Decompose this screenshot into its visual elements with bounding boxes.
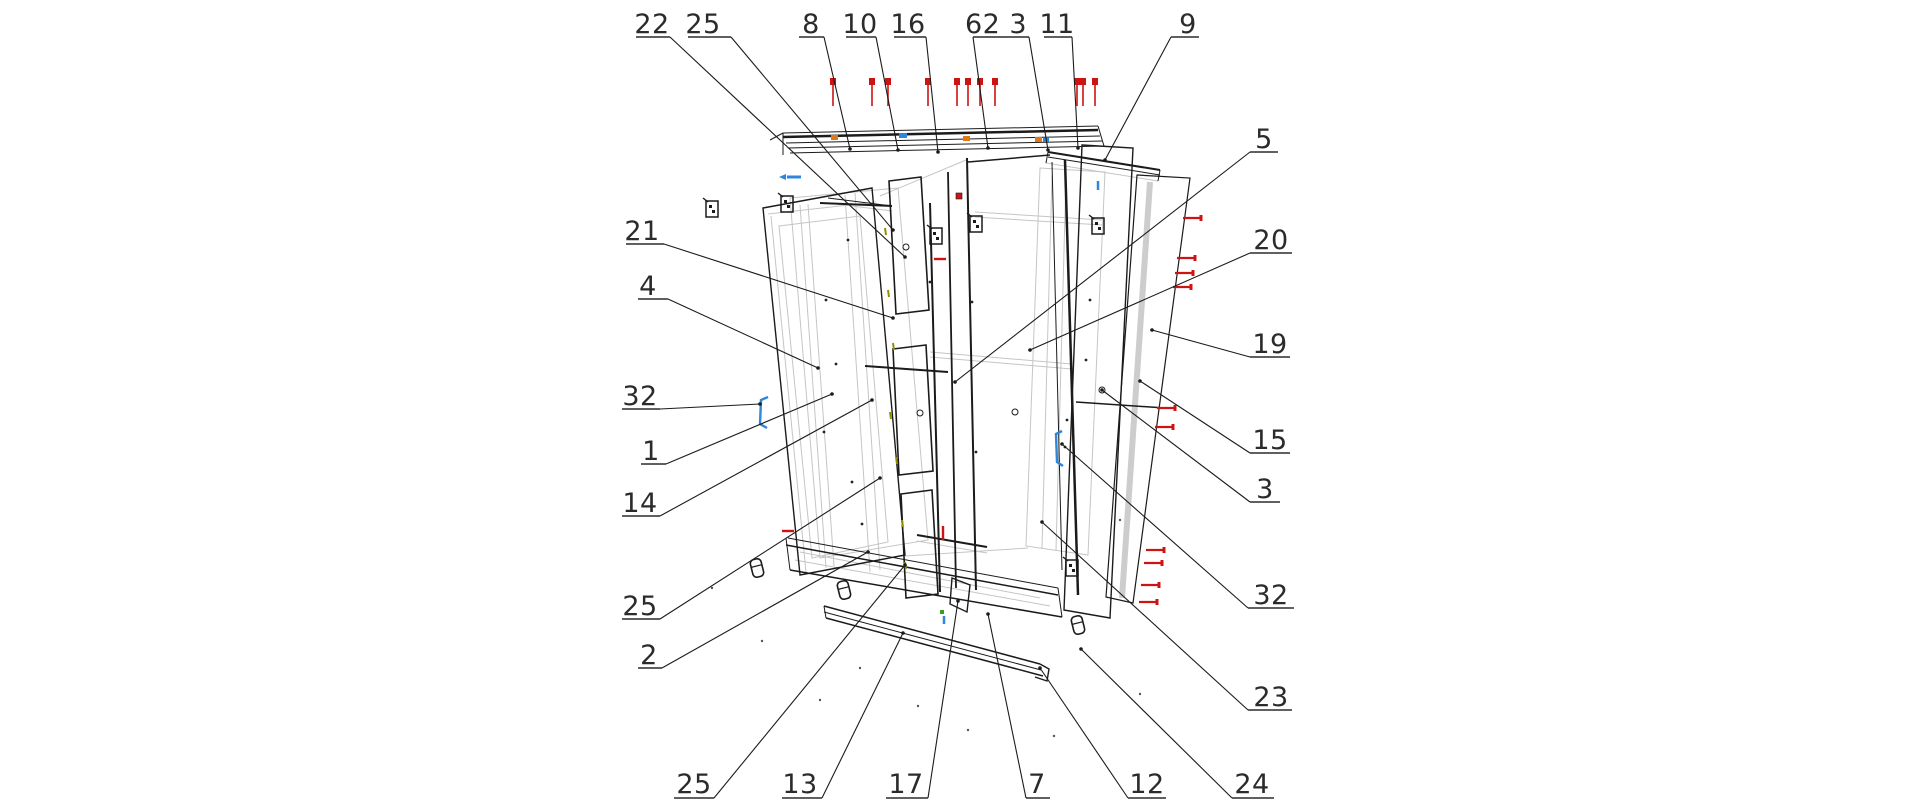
dowel-icon [888,290,889,297]
callout-17-24: 17 [888,769,923,800]
leader-line [670,37,905,257]
blue-handle-fasteners [760,133,1098,624]
leader-line [1042,522,1248,710]
leader-endpoint [891,228,895,232]
leader-endpoint [1150,328,1154,332]
leader-line [1140,381,1250,453]
hole-dot [823,431,826,434]
leader-line [731,37,893,230]
screw-icon [992,78,998,85]
hole-dot [851,481,854,484]
callout-25-13: 25 [622,591,657,622]
caster-foot-icon [1070,615,1085,635]
leader-line [988,614,1026,798]
screw-icon [1092,78,1098,85]
callout-labels: 22258101662 3119214321142525201915332232… [622,9,1294,800]
leader-line [928,601,958,798]
leader-line [1062,444,1248,608]
callout-7-25: 7 [1028,769,1046,800]
callout-16-4: 16 [890,9,925,40]
hole-ring [1012,409,1018,415]
bracket-icon [703,198,718,217]
floor-mark [1119,519,1121,521]
callout-23-21: 23 [1253,682,1288,713]
leader-endpoint [953,380,957,384]
leader-endpoint [956,599,960,603]
leader-endpoint [1040,520,1044,524]
callout-13-23: 13 [782,769,817,800]
leader-line [660,404,760,409]
floor-mark [1053,735,1055,737]
leader-endpoint [903,255,907,259]
screw-icon [869,78,875,85]
callout-21-8: 21 [624,216,659,247]
screw-icon [977,78,983,85]
dowel-icon [885,228,886,235]
callout-4-9: 4 [639,271,657,302]
callout-32-10: 32 [622,381,657,412]
caster-foot-icon [749,558,764,578]
leader-endpoint [816,366,820,370]
caster-foot-icon [836,580,851,600]
leader-line [955,152,1250,382]
leader-endpoint [830,392,834,396]
fastener-icon [956,193,962,199]
hole-dot [825,299,828,302]
floor-mark [711,587,713,589]
floor-mark [967,729,969,731]
hole-marks [711,239,1141,738]
floor-mark [1139,693,1141,695]
clip-icon [940,610,944,614]
leader-endpoint [891,316,895,320]
callout-25-1: 25 [685,9,720,40]
leader-line [1105,37,1171,160]
leader-line [660,400,872,516]
dowel-icon [902,520,903,527]
screw-icon [965,78,971,85]
hole-dot [861,523,864,526]
callout-11-6: 11 [1039,9,1074,40]
clip-icon [1035,137,1042,142]
screw-icon [885,78,891,85]
bracket-icon [1063,557,1078,576]
hole-dot [971,301,974,304]
leader-endpoint [866,550,870,554]
callout-9-7: 9 [1179,9,1197,40]
arrow-icon [779,174,786,180]
hole-dot [835,363,838,366]
dowel-icon [890,412,891,419]
hole-ring [917,410,923,416]
callout-12-26: 12 [1129,769,1164,800]
callout-24-27: 24 [1234,769,1269,800]
leader-endpoint [896,148,900,152]
callout-25-22: 25 [676,769,711,800]
leader-endpoint [1138,379,1142,383]
dowel-icon [896,457,897,464]
bracket-icon [927,225,942,244]
callout-22-0: 22 [634,9,669,40]
clip-icon [899,133,907,138]
hole-dot [929,281,932,284]
hole-dot [975,451,978,454]
leader-endpoint [1038,666,1042,670]
background-structure [768,160,1158,606]
callout-10-3: 10 [842,9,877,40]
hole-dot [1066,419,1069,422]
leader-endpoint [986,146,990,150]
diagram-page: 22258101662 3119214321142525201915332232… [0,0,1916,804]
structure-lines [770,126,1165,681]
leader-endpoint [986,612,990,616]
callout-14-12: 14 [622,488,657,519]
hole-ring [903,244,909,250]
floor-mark [917,705,919,707]
leader-endpoint [1103,158,1107,162]
leader-endpoint [758,402,762,406]
left-side-panel [763,188,905,575]
screw-icon [954,78,960,85]
leader-endpoint [936,150,940,154]
callout-15-18: 15 [1252,425,1287,456]
leader-endpoint [1076,146,1080,150]
leader-endpoint [848,147,852,151]
dowel-icon [893,343,894,350]
hole-dot [847,239,850,242]
screw-icon [1080,78,1086,85]
clip-icon [963,136,970,141]
clip-icon [831,135,838,140]
leader-endpoint [1060,442,1064,446]
leader-line [668,299,818,368]
leader-line [973,37,988,148]
bracket-icon [967,213,982,232]
leader-endpoint [870,398,874,402]
leader-line [1029,37,1048,150]
leader-line [714,565,905,798]
callout-leaders [660,37,1250,798]
callout-623-5: 62 3 [965,9,1027,40]
leader-endpoint [1100,388,1104,392]
leader-line [876,37,898,150]
floor-mark [761,640,763,642]
callout-19-17: 19 [1252,329,1287,360]
callout-8-2: 8 [802,9,820,40]
floor-mark [859,667,861,669]
leader-endpoint [903,563,907,567]
callout-20-16: 20 [1253,225,1288,256]
leader-line [1040,668,1128,798]
hole-dot [1085,359,1088,362]
leader-endpoint [1046,148,1050,152]
hole-dot [1089,299,1092,302]
leader-endpoint [1028,348,1032,352]
floor-mark [819,699,821,701]
callout-3-19: 3 [1256,474,1274,505]
callout-2-14: 2 [640,640,658,671]
callout-1-11: 1 [642,436,660,467]
leader-endpoint [878,476,882,480]
exploded-view-diagram: 22258101662 3119214321142525201915332232… [0,0,1916,804]
leader-endpoint [901,631,905,635]
leader-endpoint [1079,647,1083,651]
callout-5-15: 5 [1255,124,1273,155]
callout-32-20: 32 [1253,580,1288,611]
